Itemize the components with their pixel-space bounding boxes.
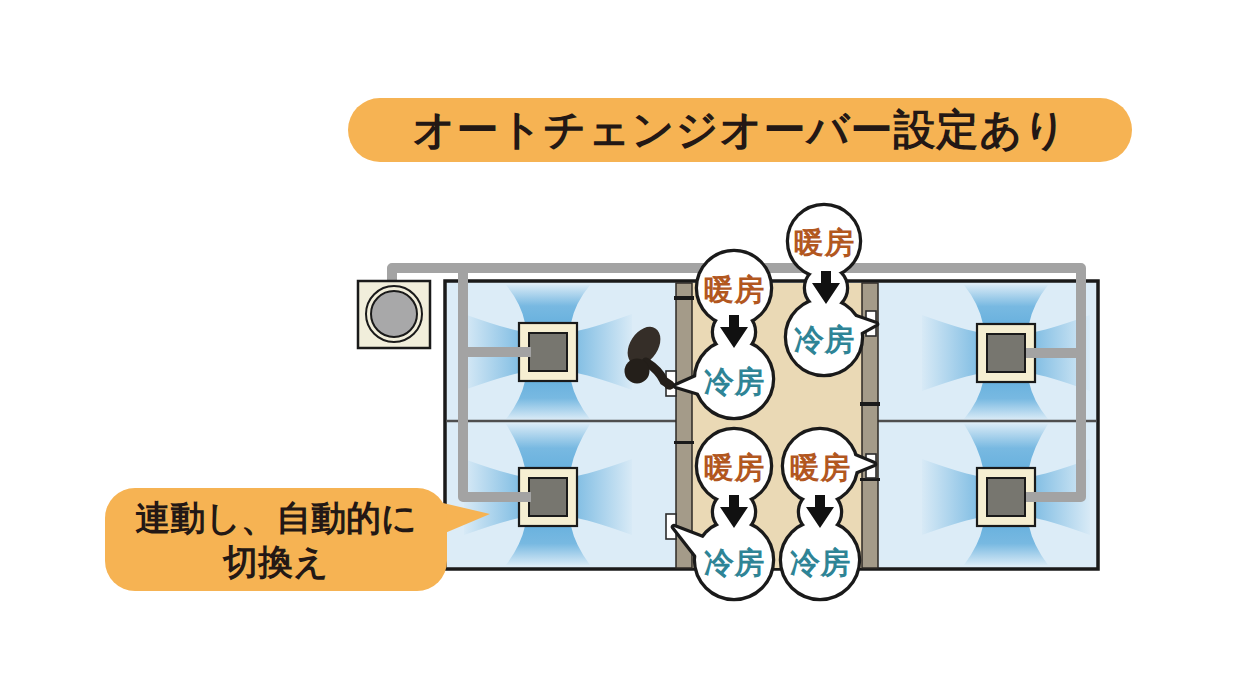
mode-to-label: 冷房 xyxy=(704,546,764,579)
mode-from-label: 暖房 xyxy=(794,226,854,259)
outdoor-unit xyxy=(358,281,430,348)
callout-bubble: 連動し、自動的に 切換え xyxy=(105,488,447,591)
wall-joint-tick xyxy=(860,402,880,406)
mode-to-label: 冷房 xyxy=(704,365,764,398)
mode-to-label: 冷房 xyxy=(790,546,850,579)
auto-changeover-diagram: 暖房 冷房 暖房 冷房 xyxy=(0,0,1240,698)
mode-from-label: 暖房 xyxy=(790,451,850,484)
title-banner: オートチェンジオーバー設定あり xyxy=(348,98,1132,162)
mode-from-label: 暖房 xyxy=(704,273,764,306)
callout-line2: 切換え xyxy=(223,540,329,584)
callout-line1: 連動し、自動的に xyxy=(135,496,417,540)
mode-to-label: 冷房 xyxy=(794,323,854,356)
title-text: オートチェンジオーバー設定あり xyxy=(413,102,1068,158)
mode-from-label: 暖房 xyxy=(704,451,764,484)
wall-joint-tick xyxy=(674,296,694,300)
wall-joint-tick xyxy=(674,441,694,444)
